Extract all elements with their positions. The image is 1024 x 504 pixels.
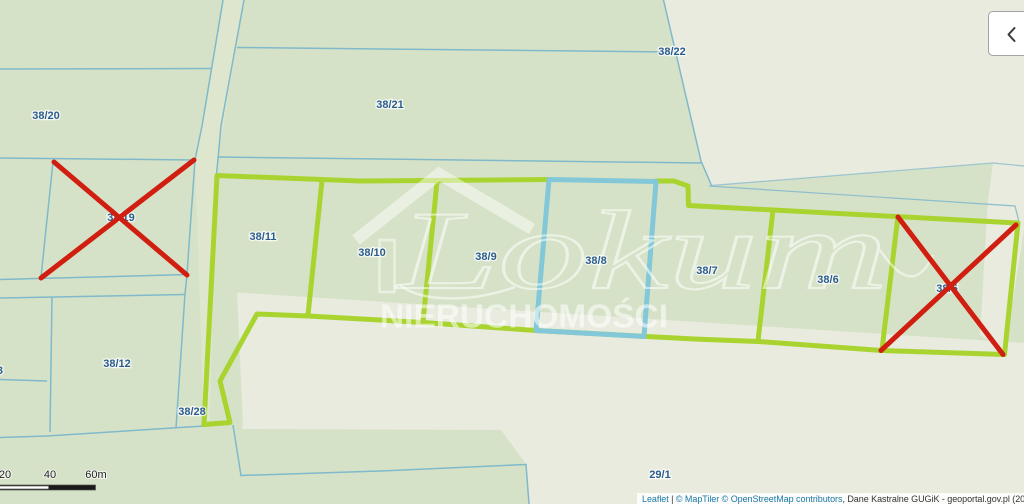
- svg-text:60m: 60m: [85, 469, 106, 481]
- svg-text:40: 40: [44, 469, 56, 481]
- svg-text:38/20: 38/20: [32, 110, 60, 122]
- svg-text:38/13: 38/13: [0, 365, 3, 377]
- svg-text:38/6: 38/6: [817, 274, 838, 286]
- svg-text:38/21: 38/21: [376, 99, 404, 111]
- svg-text:Lokum: Lokum: [395, 189, 888, 313]
- svg-text:38/28: 38/28: [178, 406, 206, 418]
- svg-text:38/7: 38/7: [696, 265, 717, 277]
- svg-text:Leaflet | © MapTiler © OpenStr: Leaflet | © MapTiler © OpenStreetMap con…: [642, 494, 1024, 504]
- svg-text:38/11: 38/11: [250, 231, 277, 243]
- svg-text:38/22: 38/22: [658, 46, 686, 58]
- svg-text:38/9: 38/9: [475, 251, 496, 263]
- svg-text:29/1: 29/1: [649, 469, 670, 481]
- svg-text:38/10: 38/10: [358, 247, 386, 259]
- svg-text:38/8: 38/8: [585, 255, 606, 267]
- svg-text:NIERUCHOMOŚCI: NIERUCHOMOŚCI: [380, 298, 668, 335]
- svg-text:20: 20: [0, 469, 11, 481]
- svg-text:38/12: 38/12: [103, 358, 131, 370]
